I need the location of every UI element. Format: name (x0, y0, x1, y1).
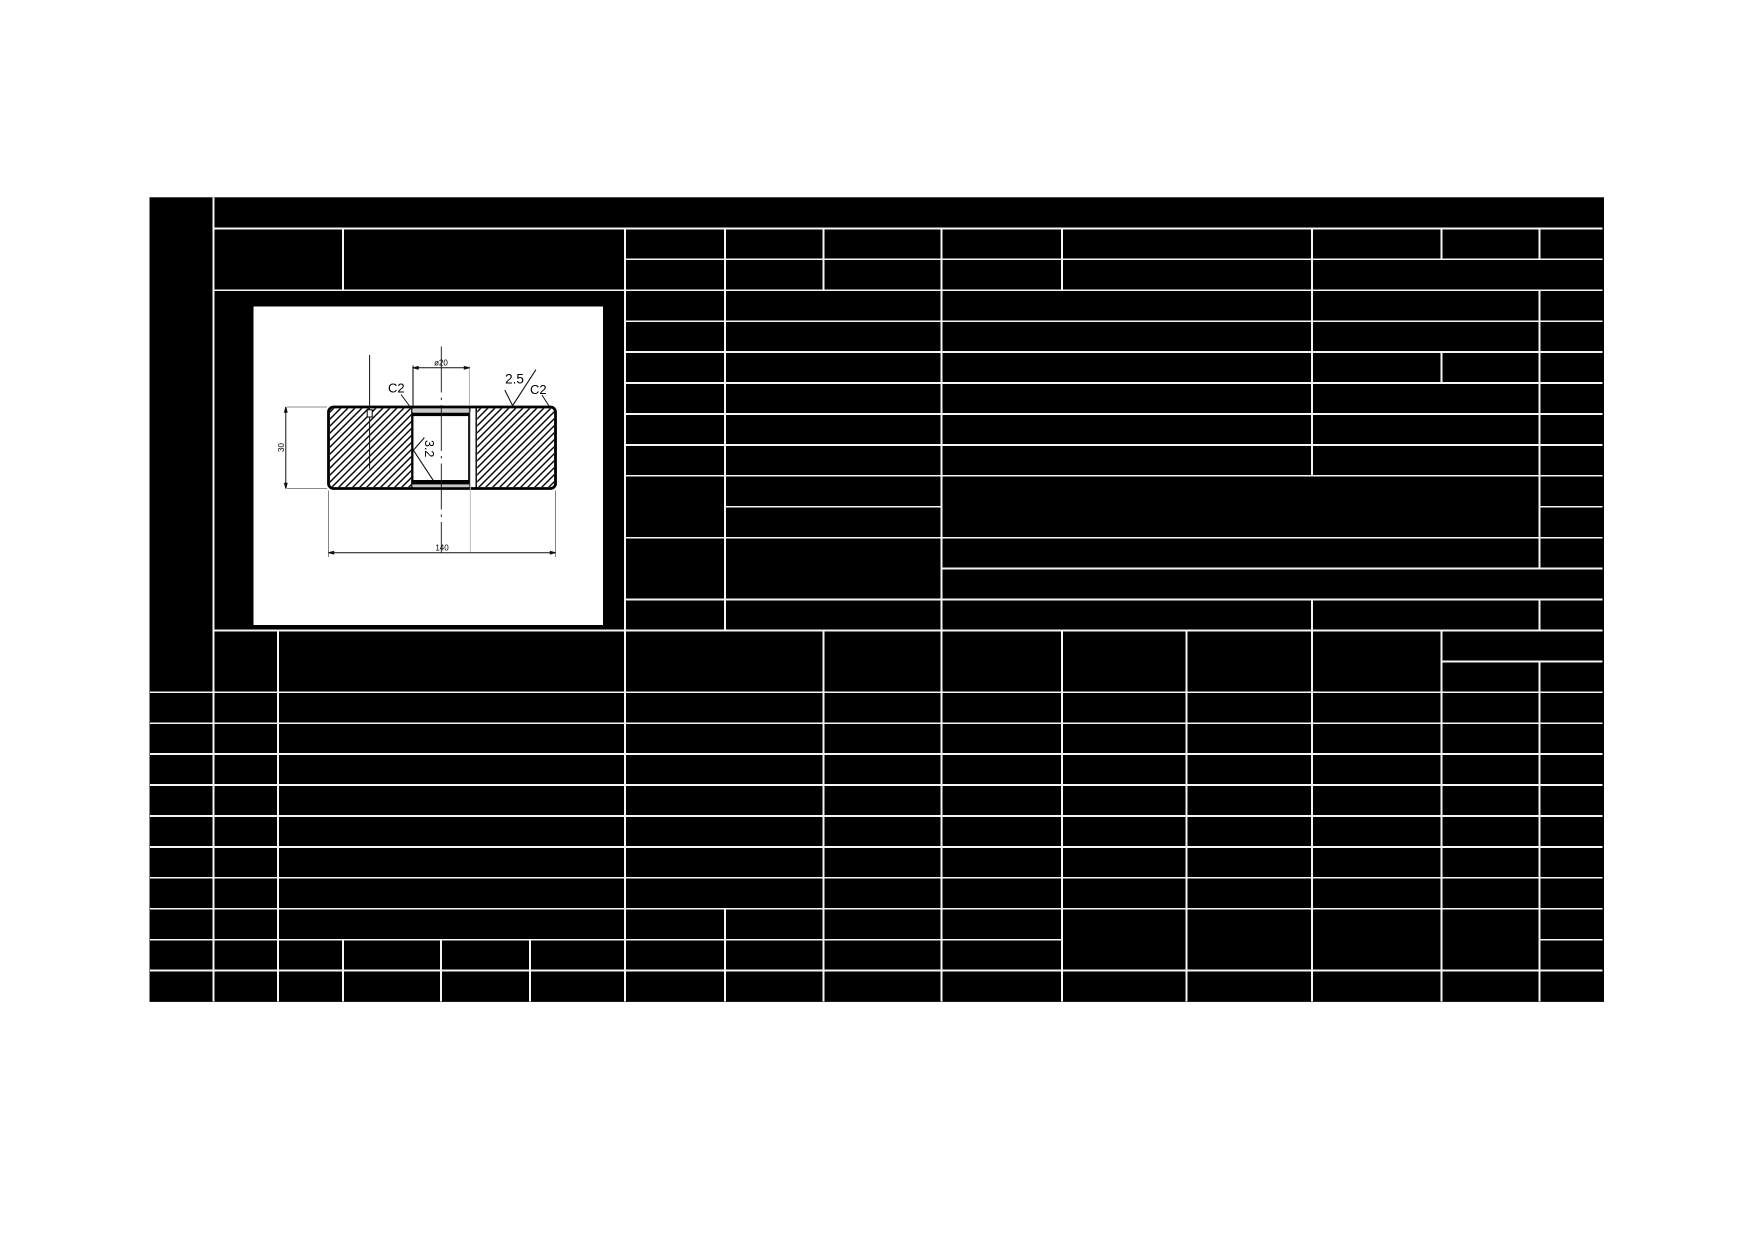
svg-text:C2: C2 (388, 381, 405, 396)
svg-text:30: 30 (277, 443, 286, 452)
svg-text:ø20: ø20 (434, 358, 448, 367)
svg-text:2.5: 2.5 (505, 371, 524, 386)
svg-text:3.2: 3.2 (422, 440, 436, 457)
svg-text:140: 140 (435, 544, 449, 553)
svg-text:C2: C2 (530, 382, 547, 397)
